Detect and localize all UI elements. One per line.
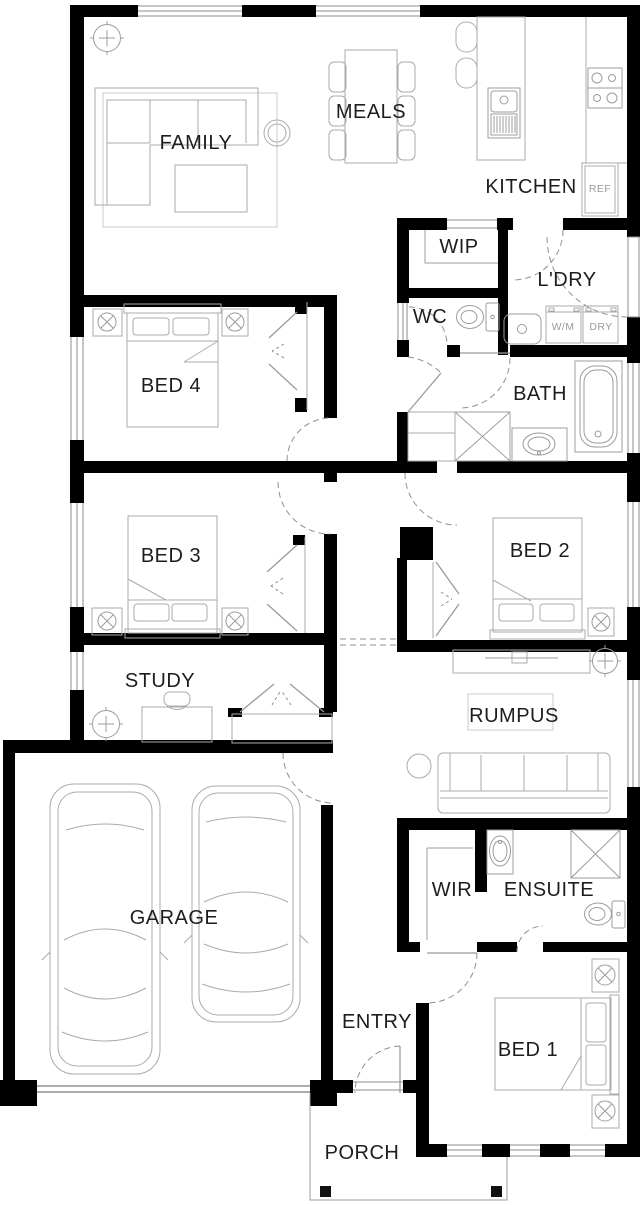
laundry-tub [504,314,541,344]
side-table [407,754,431,778]
car-small [184,786,308,1022]
room-label-entry: ENTRY [342,1012,412,1032]
coffee-table [175,165,247,212]
room-label-porch: PORCH [325,1143,400,1163]
room-label-laundry: L'DRY [537,270,596,290]
bathtub [575,361,622,452]
built-in-robe [269,302,307,410]
ensuite-door-arc [517,926,543,952]
garage-internal-door-arc [283,753,333,803]
bath-fixtures [455,361,622,461]
room-label-family: FAMILY [160,133,233,153]
room-label-meals: MEALS [336,102,406,122]
desk [142,692,212,742]
bedside-lamps [595,965,615,1121]
floor-plan: FAMILY MEALS KITCHEN WIP L'DRY WC BATH B… [0,0,640,1205]
linen-cupboard [408,412,455,461]
room-label-garage: GARAGE [130,908,219,928]
bedside-lamp [592,613,610,631]
bed4-door-arc [287,418,330,461]
room-label-wir: WIR [432,880,472,900]
sofa [438,753,610,813]
appliance-label-fridge: REF [589,184,611,195]
bed3-door-arc [278,482,330,534]
room-label-bed4: BED 4 [141,376,201,396]
shower [571,830,620,878]
shower [455,412,510,461]
wc-toilet [457,303,500,331]
room-label-wc: WC [413,307,447,327]
room-label-rumpus: RUMPUS [469,706,559,726]
room-label-study: STUDY [125,671,195,691]
room-label-bath: BATH [513,384,567,404]
room-label-bed1: BED 1 [498,1040,558,1060]
tv-unit [453,650,590,673]
bed2-door-arc [405,473,457,525]
hall-opening-dashes [340,639,396,645]
family-rug [103,93,277,227]
bed4-furniture [93,302,307,427]
bed3-furniture [92,516,305,638]
cooktop [588,68,622,108]
bedside-tables [592,959,619,1128]
island-sink [488,88,520,138]
ceiling-fan-icon [90,21,124,55]
toilet [585,901,626,928]
hall-door-arc [408,357,441,373]
room-label-ensuite: ENSUITE [504,880,594,900]
room-label-bed3: BED 3 [141,546,201,566]
double-bed [490,518,585,639]
rumpus-furniture [407,645,621,813]
bed2-furniture [433,518,614,639]
bar-stools [456,22,477,88]
bedside-tables [92,608,248,635]
built-in-robe [267,537,305,633]
car-large [42,784,168,1074]
vanity-basin [512,428,567,461]
double-bed [125,516,220,638]
hall-door-leaf [408,373,441,412]
double-bed [124,304,221,427]
vanity-basin [487,830,513,874]
bed1-hall-door-arc [427,953,477,1003]
room-label-kitchen: KITCHEN [485,177,576,197]
study-closet [232,684,332,743]
study-furniture [89,684,332,743]
porch-post [491,1186,502,1197]
ceiling-fan-icon [89,707,123,741]
kitchen-bench [586,17,627,163]
appliance-label-washing-machine: W/M [552,322,575,333]
room-label-wip: WIP [439,237,478,257]
built-in-robe [433,562,459,638]
porch-post [320,1186,331,1197]
garage-contents [42,784,308,1074]
family-furniture [90,21,290,227]
bath-door-arc [460,358,510,408]
room-label-bed2: BED 2 [510,541,570,561]
appliance-label-dryer: DRY [589,322,612,333]
